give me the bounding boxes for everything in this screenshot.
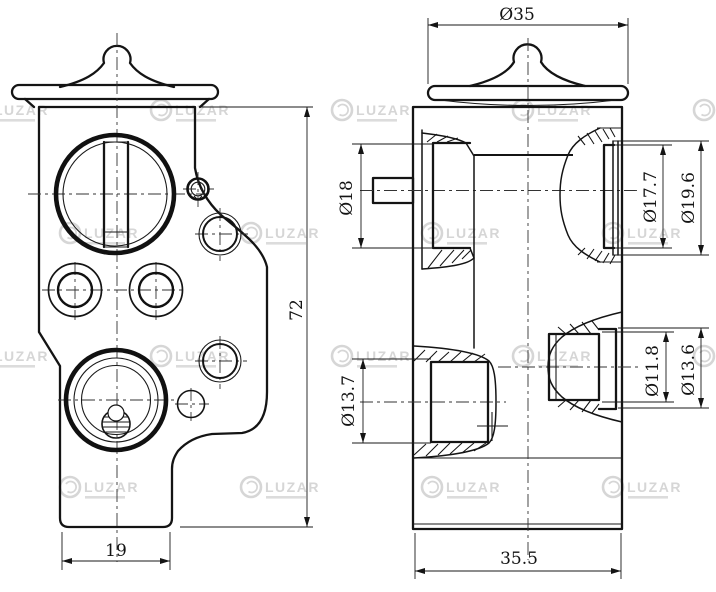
watermark-logo	[241, 477, 320, 499]
dim-label-upper-outlet-inner: Ø17.7	[641, 171, 661, 223]
watermark-logo	[0, 100, 49, 122]
dim-label-height: 72	[287, 299, 307, 321]
watermark-logo	[422, 477, 501, 499]
watermark-layer	[0, 100, 716, 499]
dim-label-upper-outlet-outer: Ø19.6	[679, 172, 699, 224]
watermark-logo	[694, 100, 716, 122]
watermark-logo	[60, 477, 139, 499]
watermark-logo	[332, 100, 411, 122]
upper-outlet-port	[560, 128, 622, 264]
watermark-logo	[151, 100, 230, 122]
dim-label-cap-diameter: Ø35	[499, 5, 535, 25]
dim-inlet-port: Ø18	[337, 144, 433, 248]
dim-front-base-width: 19	[62, 532, 170, 570]
dim-lower-inlet: Ø13.7	[339, 359, 431, 443]
dim-body-depth: 35.5	[415, 533, 621, 579]
dim-label-lower-outlet-outer: Ø13.6	[679, 344, 699, 396]
watermark-logo	[151, 346, 230, 368]
watermark-logo	[603, 477, 682, 499]
watermark-logo	[603, 223, 682, 245]
dim-label-lower-inlet: Ø13.7	[339, 375, 359, 427]
watermark-logo	[0, 346, 49, 368]
dim-label-lower-outlet-inner: Ø11.8	[643, 345, 663, 397]
technical-drawing-canvas: LUZAR	[0, 0, 716, 592]
dim-label-base-width: 19	[105, 541, 127, 561]
watermark-logo	[332, 346, 411, 368]
dim-lower-outlet-outer: Ø13.6	[618, 328, 709, 408]
dim-front-height: 72	[180, 107, 313, 527]
section-body-lines	[413, 458, 622, 524]
section-body-outline	[413, 107, 622, 529]
drawing-svg: LUZAR	[0, 0, 716, 592]
dim-label-inlet-port: Ø18	[337, 180, 357, 216]
front-cap	[12, 46, 218, 107]
dim-label-body-depth: 35.5	[500, 549, 538, 569]
